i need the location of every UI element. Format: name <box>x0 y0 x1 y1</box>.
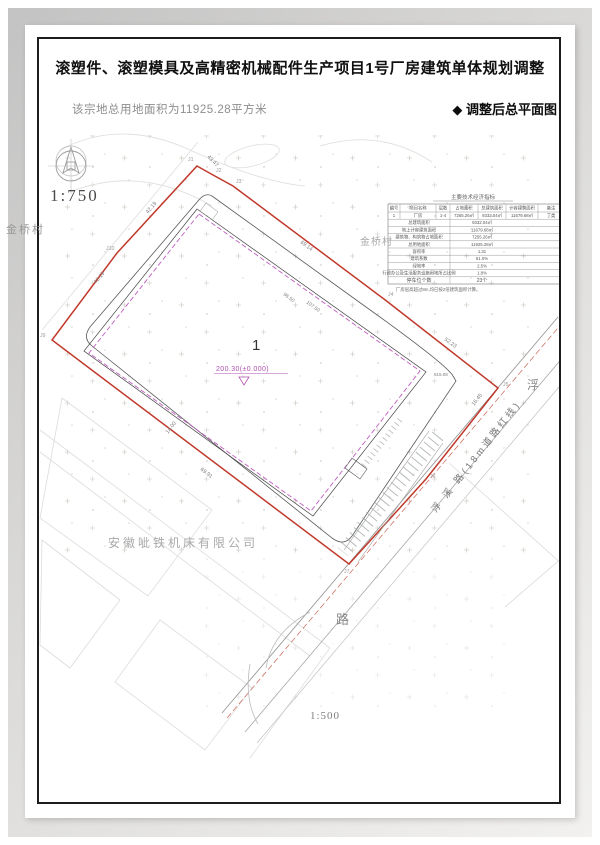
village-label-2: 金桥村 <box>360 233 393 248</box>
road-scale-label: 1:500 <box>310 710 340 722</box>
drawing-caption: ◆ 调整后总平面图 <box>39 99 557 118</box>
main-scale-label: 1:750 <box>50 186 99 206</box>
company-label: 安徽呲铁机床有限公司 <box>108 534 258 551</box>
page-title: 滚塑件、滚塑模具及高精密机械配件生产项目1号厂房建筑单体规划调整 <box>39 57 561 78</box>
village-label: 金桥村 <box>6 221 45 237</box>
drawing-page: 200.30(±0.000) 1 J1 J2 J3 J4 J5 J6 J7 J9… <box>0 0 600 845</box>
drawing-frame <box>37 37 561 804</box>
